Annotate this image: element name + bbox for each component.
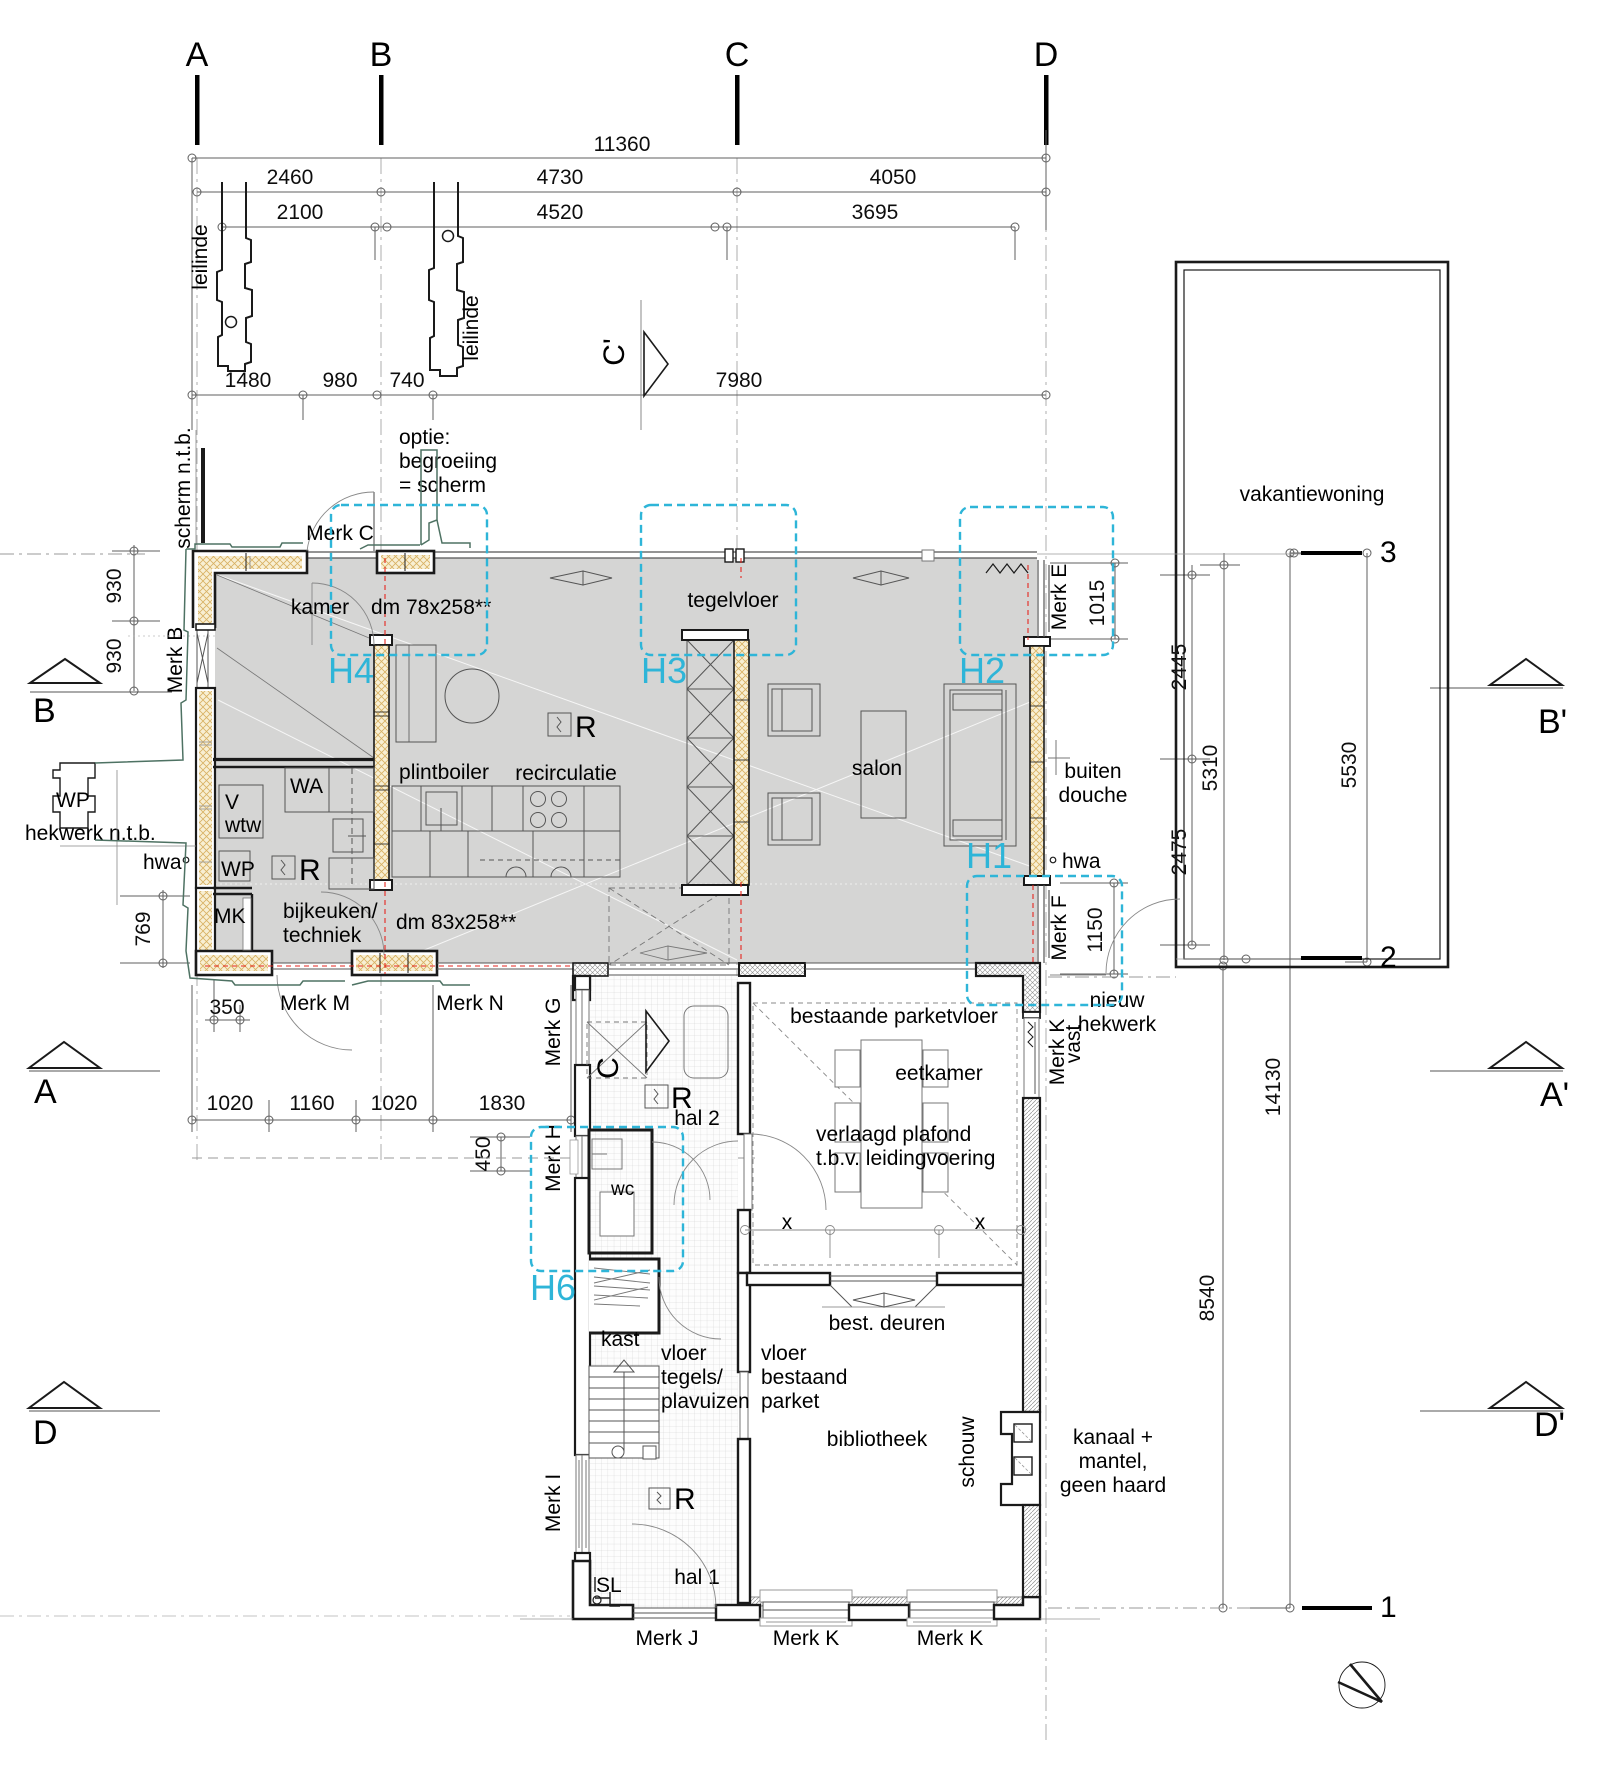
svg-text:4520: 4520 [537, 201, 584, 224]
svg-text:x: x [782, 1211, 793, 1234]
svg-text:bibliotheek: bibliotheek [827, 1428, 928, 1451]
svg-text:kanaal +: kanaal + [1073, 1426, 1153, 1449]
svg-text:4050: 4050 [870, 166, 917, 189]
svg-text:eetkamer: eetkamer [895, 1062, 983, 1085]
svg-text:C: C [725, 36, 750, 74]
svg-text:H1: H1 [966, 835, 1012, 876]
svg-text:R: R [299, 854, 321, 887]
svg-text:WP: WP [221, 858, 255, 881]
svg-text:740: 740 [389, 369, 424, 392]
svg-text:hwa: hwa [143, 851, 182, 874]
svg-text:recirculatie: recirculatie [515, 762, 617, 785]
svg-text:Merk M: Merk M [280, 992, 350, 1015]
svg-text:scherm n.t.b.: scherm n.t.b. [172, 427, 195, 548]
svg-text:R: R [674, 1483, 696, 1516]
svg-text:1015: 1015 [1086, 580, 1109, 627]
svg-text:R: R [575, 711, 597, 744]
svg-text:350: 350 [209, 996, 244, 1019]
svg-text:optie:: optie: [399, 426, 450, 449]
svg-text:769: 769 [132, 911, 155, 946]
svg-text:3: 3 [1380, 536, 1397, 569]
svg-text:vloer: vloer [661, 1342, 707, 1365]
svg-text:1150: 1150 [1084, 907, 1107, 952]
svg-text:2460: 2460 [267, 166, 314, 189]
svg-text:B: B [33, 692, 56, 730]
svg-text:vakantiewoning: vakantiewoning [1240, 483, 1385, 506]
svg-text:A: A [186, 36, 209, 74]
svg-text:H2: H2 [959, 650, 1005, 691]
svg-text:Merk I: Merk I [542, 1474, 565, 1532]
svg-text:Merk F: Merk F [1048, 895, 1071, 960]
svg-text:kamer: kamer [291, 596, 349, 619]
svg-text:8540: 8540 [1196, 1275, 1219, 1322]
svg-text:5530: 5530 [1338, 742, 1361, 789]
svg-text:SL: SL [596, 1574, 622, 1597]
svg-text:dm 83x258**: dm 83x258** [396, 911, 516, 934]
svg-text:2445: 2445 [1168, 644, 1191, 691]
svg-text:MK: MK [214, 905, 246, 928]
svg-text:bestaand: bestaand [761, 1366, 847, 1389]
svg-text:Merk H: Merk H [542, 1124, 565, 1192]
svg-text:H4: H4 [328, 650, 374, 691]
svg-text:2: 2 [1380, 941, 1397, 974]
svg-text:WP: WP [56, 789, 90, 812]
svg-text:980: 980 [322, 369, 357, 392]
svg-text:Merk N: Merk N [436, 992, 504, 1015]
svg-text:4730: 4730 [537, 166, 584, 189]
svg-text:H6: H6 [530, 1267, 576, 1308]
svg-text:B: B [370, 36, 393, 74]
svg-text:Merk K: Merk K [917, 1627, 984, 1650]
svg-text:schouw: schouw [956, 1416, 979, 1488]
svg-text:3695: 3695 [852, 201, 899, 224]
svg-text:A': A' [1540, 1076, 1569, 1114]
svg-text:B': B' [1538, 703, 1567, 741]
svg-text:5310: 5310 [1199, 745, 1222, 792]
svg-text:1020: 1020 [371, 1092, 418, 1115]
svg-text:best. deuren: best. deuren [829, 1312, 946, 1335]
svg-text:hekwerk: hekwerk [1078, 1013, 1157, 1036]
svg-text:7980: 7980 [716, 369, 763, 392]
svg-text:1480: 1480 [225, 369, 272, 392]
svg-text:WA: WA [290, 775, 323, 798]
svg-text:t.b.v. leidingvoering: t.b.v. leidingvoering [816, 1147, 995, 1170]
svg-text:450: 450 [472, 1136, 495, 1171]
svg-text:plavuizen: plavuizen [661, 1390, 750, 1413]
svg-text:leilinde: leilinde [189, 224, 212, 289]
svg-text:salon: salon [852, 757, 902, 780]
svg-text:= scherm: = scherm [399, 474, 486, 497]
svg-text:Merk J: Merk J [636, 1627, 699, 1650]
svg-text:buiten: buiten [1064, 760, 1121, 783]
svg-text:930: 930 [103, 568, 126, 603]
svg-text:H3: H3 [641, 650, 687, 691]
svg-text:nieuw: nieuw [1090, 989, 1146, 1012]
svg-text:leilinde: leilinde [460, 295, 483, 360]
svg-text:1: 1 [1380, 1591, 1397, 1624]
svg-text:2100: 2100 [277, 201, 324, 224]
svg-text:V: V [225, 791, 239, 814]
svg-text:bestaande parketvloer: bestaande parketvloer [790, 1005, 998, 1028]
svg-text:dm 78x258**: dm 78x258** [371, 596, 491, 619]
svg-text:Merk E: Merk E [1048, 564, 1071, 631]
svg-text:douche: douche [1059, 784, 1128, 807]
svg-text:wc: wc [610, 1179, 634, 1200]
svg-text:parket: parket [761, 1390, 820, 1413]
svg-text:2475: 2475 [1168, 829, 1191, 876]
svg-text:begroeiing: begroeiing [399, 450, 497, 473]
svg-text:A: A [34, 1073, 57, 1111]
svg-text:Merk B: Merk B [164, 627, 187, 694]
svg-text:hwa: hwa [1062, 850, 1101, 873]
svg-text:D: D [1034, 36, 1059, 74]
svg-text:bijkeuken/: bijkeuken/ [283, 900, 378, 923]
svg-text:tegels/: tegels/ [661, 1366, 723, 1389]
svg-text:C': C' [598, 338, 631, 365]
svg-text:geen haard: geen haard [1060, 1474, 1166, 1497]
svg-text:11360: 11360 [594, 133, 651, 156]
svg-text:x: x [975, 1211, 986, 1234]
svg-text:D': D' [1534, 1406, 1565, 1444]
svg-text:tegelvloer: tegelvloer [687, 589, 778, 612]
svg-text:14130: 14130 [1262, 1058, 1285, 1116]
svg-text:Merk C: Merk C [306, 522, 374, 545]
svg-text:plintboiler: plintboiler [399, 761, 489, 784]
svg-text:1020: 1020 [207, 1092, 254, 1115]
svg-text:1830: 1830 [479, 1092, 526, 1115]
svg-text:kast: kast [601, 1328, 640, 1351]
svg-text:techniek: techniek [283, 924, 362, 947]
svg-text:vloer: vloer [761, 1342, 807, 1365]
svg-text:mantel,: mantel, [1079, 1450, 1148, 1473]
svg-text:1160: 1160 [289, 1092, 334, 1115]
svg-text:wtw: wtw [224, 814, 262, 837]
svg-text:930: 930 [103, 638, 126, 673]
svg-text:Merk K: Merk K [773, 1627, 840, 1650]
svg-text:C: C [592, 1057, 625, 1079]
svg-text:Merk G: Merk G [542, 998, 565, 1067]
svg-text:D: D [33, 1414, 58, 1452]
svg-text:verlaagd plafond: verlaagd plafond [816, 1123, 971, 1146]
svg-text:hal 2: hal 2 [674, 1107, 720, 1130]
